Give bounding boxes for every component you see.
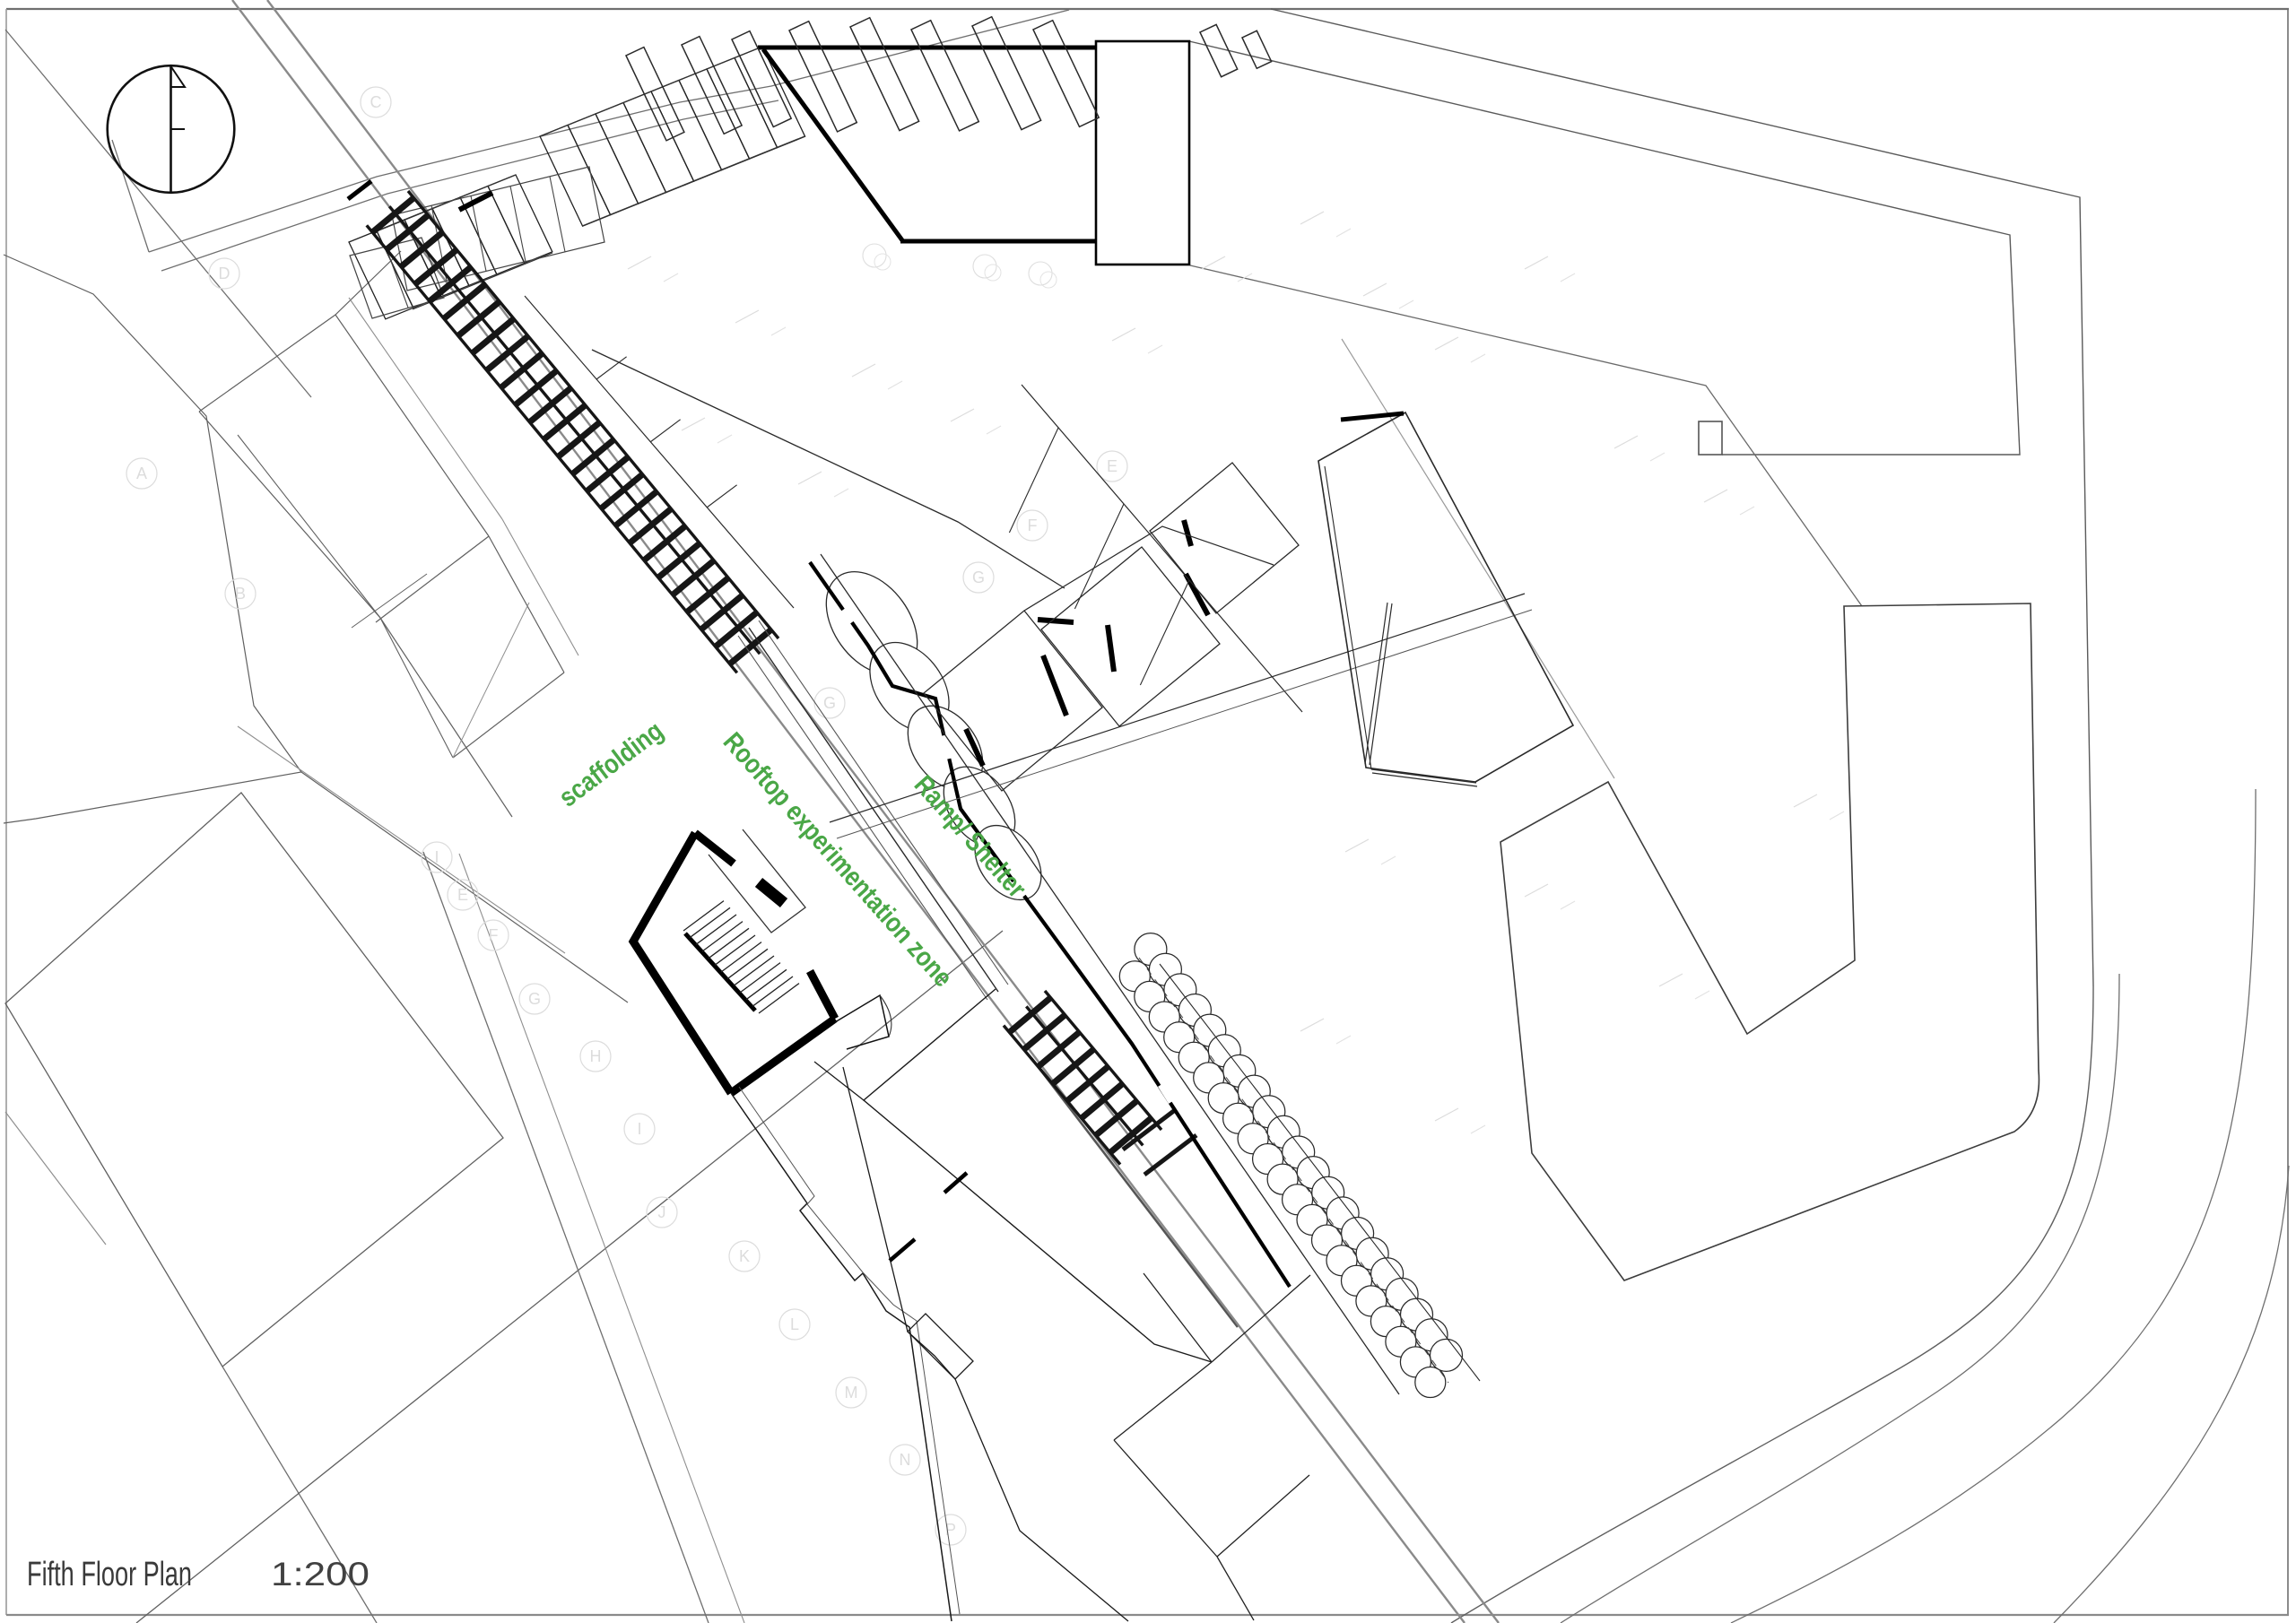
svg-text:D: D (219, 265, 230, 282)
svg-text:I: I (434, 848, 439, 866)
svg-text:C: C (370, 93, 382, 111)
svg-text:B: B (235, 585, 246, 603)
svg-text:I: I (637, 1120, 641, 1138)
svg-text:M: M (845, 1384, 858, 1402)
svg-text:E: E (1107, 457, 1118, 475)
svg-text:G: G (823, 694, 836, 712)
svg-text:Fifth Floor Plan: Fifth Floor Plan (27, 1556, 192, 1593)
svg-text:H: H (590, 1047, 602, 1065)
svg-text:G: G (528, 990, 541, 1008)
svg-text:J: J (658, 1203, 666, 1221)
svg-text:F: F (1028, 516, 1038, 534)
svg-text:L: L (790, 1315, 799, 1333)
svg-text:F: F (489, 926, 499, 944)
svg-text:G: G (972, 568, 985, 586)
svg-text:A: A (136, 464, 147, 482)
svg-text:E: E (457, 886, 468, 904)
svg-text:1:200: 1:200 (271, 1556, 370, 1593)
svg-text:K: K (739, 1247, 750, 1265)
svg-text:N: N (900, 1451, 911, 1469)
